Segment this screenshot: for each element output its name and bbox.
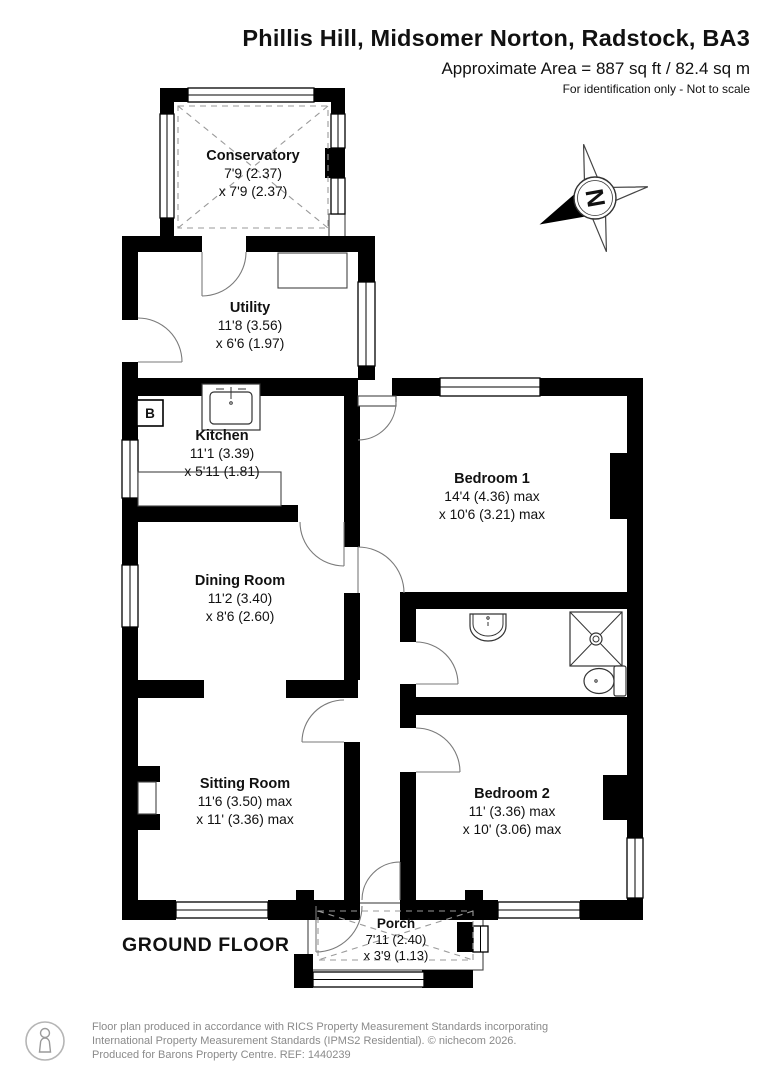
door-dining-hall	[358, 547, 404, 593]
window	[473, 926, 488, 952]
room-dim: x 11' (3.36) max	[196, 812, 294, 827]
window	[313, 972, 424, 987]
room-dim: 11'1 (3.39)	[190, 446, 255, 461]
window	[358, 282, 375, 366]
room-dim: x 7'9 (2.37)	[219, 184, 288, 199]
header: Phillis Hill, Midsomer Norton, Radstock,…	[242, 25, 750, 96]
door-hall-bedroom2	[416, 728, 460, 772]
room-dim: x 8'6 (2.60)	[206, 609, 275, 624]
windows	[122, 88, 643, 987]
room-label-kitchen: Kitchen 11'1 (3.39) x 5'11 (1.81)	[184, 428, 259, 479]
room-name: Bedroom 1	[454, 471, 530, 487]
floor-plan-canvas: Phillis Hill, Midsomer Norton, Radstock,…	[0, 0, 764, 1080]
door-front	[362, 862, 400, 900]
room-label-utility: Utility 11'8 (3.56) x 6'6 (1.97)	[216, 300, 285, 351]
window	[122, 565, 138, 627]
room-dim: 7'11 (2.40)	[366, 932, 427, 947]
toilet-icon	[584, 666, 626, 696]
room-name: Dining Room	[195, 573, 285, 589]
room-dim: x 10' (3.06) max	[463, 822, 562, 837]
room-dim: x 6'6 (1.97)	[216, 336, 285, 351]
room-dim: x 3'9 (1.13)	[364, 948, 429, 963]
room-dim: 11'2 (3.40)	[208, 591, 273, 606]
footer-line-1: Floor plan produced in accordance with R…	[92, 1021, 548, 1033]
window	[331, 114, 345, 148]
room-label-bedroom1: Bedroom 1 14'4 (4.36) max x 10'6 (3.21) …	[439, 471, 545, 522]
room-name: Porch	[377, 916, 415, 931]
hall-door-leaf	[358, 396, 396, 406]
window	[188, 88, 314, 102]
kitchen-sink-icon	[202, 384, 260, 430]
door-hall-sitting	[302, 700, 344, 742]
room-name: Kitchen	[195, 428, 248, 444]
fireplace	[138, 766, 160, 830]
boiler-label: B	[145, 406, 155, 421]
room-dim: 11'6 (3.50) max	[198, 794, 293, 809]
door-utility-side	[138, 318, 182, 362]
room-dim: 11' (3.36) max	[469, 804, 556, 819]
room-dim: x 5'11 (1.81)	[184, 464, 259, 479]
room-dim: 7'9 (2.37)	[224, 166, 282, 181]
door-hall-bathroom	[416, 642, 458, 684]
bathroom-fixtures	[470, 612, 626, 696]
approximate-area: Approximate Area = 887 sq ft / 82.4 sq m	[441, 59, 750, 78]
room-label-conservatory: Conservatory 7'9 (2.37) x 7'9 (2.37)	[206, 148, 299, 199]
room-dim: 11'8 (3.56)	[218, 318, 283, 333]
window	[122, 440, 138, 498]
door-conservatory-utility	[202, 252, 246, 296]
room-label-sitting: Sitting Room 11'6 (3.50) max x 11' (3.36…	[196, 776, 294, 827]
roof-dashes	[178, 106, 473, 960]
floor-label: GROUND FLOOR	[122, 934, 290, 956]
page-title: Phillis Hill, Midsomer Norton, Radstock,…	[242, 25, 750, 51]
room-label-bedroom2: Bedroom 2 11' (3.36) max x 10' (3.06) ma…	[463, 786, 562, 837]
room-dim: x 10'6 (3.21) max	[439, 507, 545, 522]
basin-icon	[470, 614, 506, 641]
window	[627, 838, 643, 898]
shower-icon	[570, 612, 622, 666]
room-label-dining: Dining Room 11'2 (3.40) x 8'6 (2.60)	[195, 573, 285, 624]
footer: Floor plan produced in accordance with R…	[26, 1021, 548, 1061]
room-name: Sitting Room	[200, 776, 290, 792]
room-name: Bedroom 2	[474, 786, 550, 802]
compass-icon: N	[527, 133, 659, 264]
footer-line-3: Produced for Barons Property Centre. REF…	[92, 1049, 351, 1061]
window	[331, 178, 345, 214]
room-name: Utility	[230, 300, 270, 316]
door-utility-hall	[358, 402, 396, 440]
utility-cupboard	[278, 253, 347, 288]
window	[176, 902, 268, 918]
window	[160, 114, 174, 218]
room-name: Conservatory	[206, 148, 299, 164]
disclaimer: For identification only - Not to scale	[563, 82, 751, 96]
footer-line-2: International Property Measurement Stand…	[92, 1035, 516, 1047]
boiler-box: B	[137, 400, 163, 426]
window	[498, 902, 580, 918]
room-dim: 14'4 (4.36) max	[444, 489, 540, 504]
person-icon	[26, 1022, 64, 1060]
door-kitchen-dining	[300, 522, 344, 566]
walls	[122, 88, 643, 988]
window	[440, 378, 540, 396]
